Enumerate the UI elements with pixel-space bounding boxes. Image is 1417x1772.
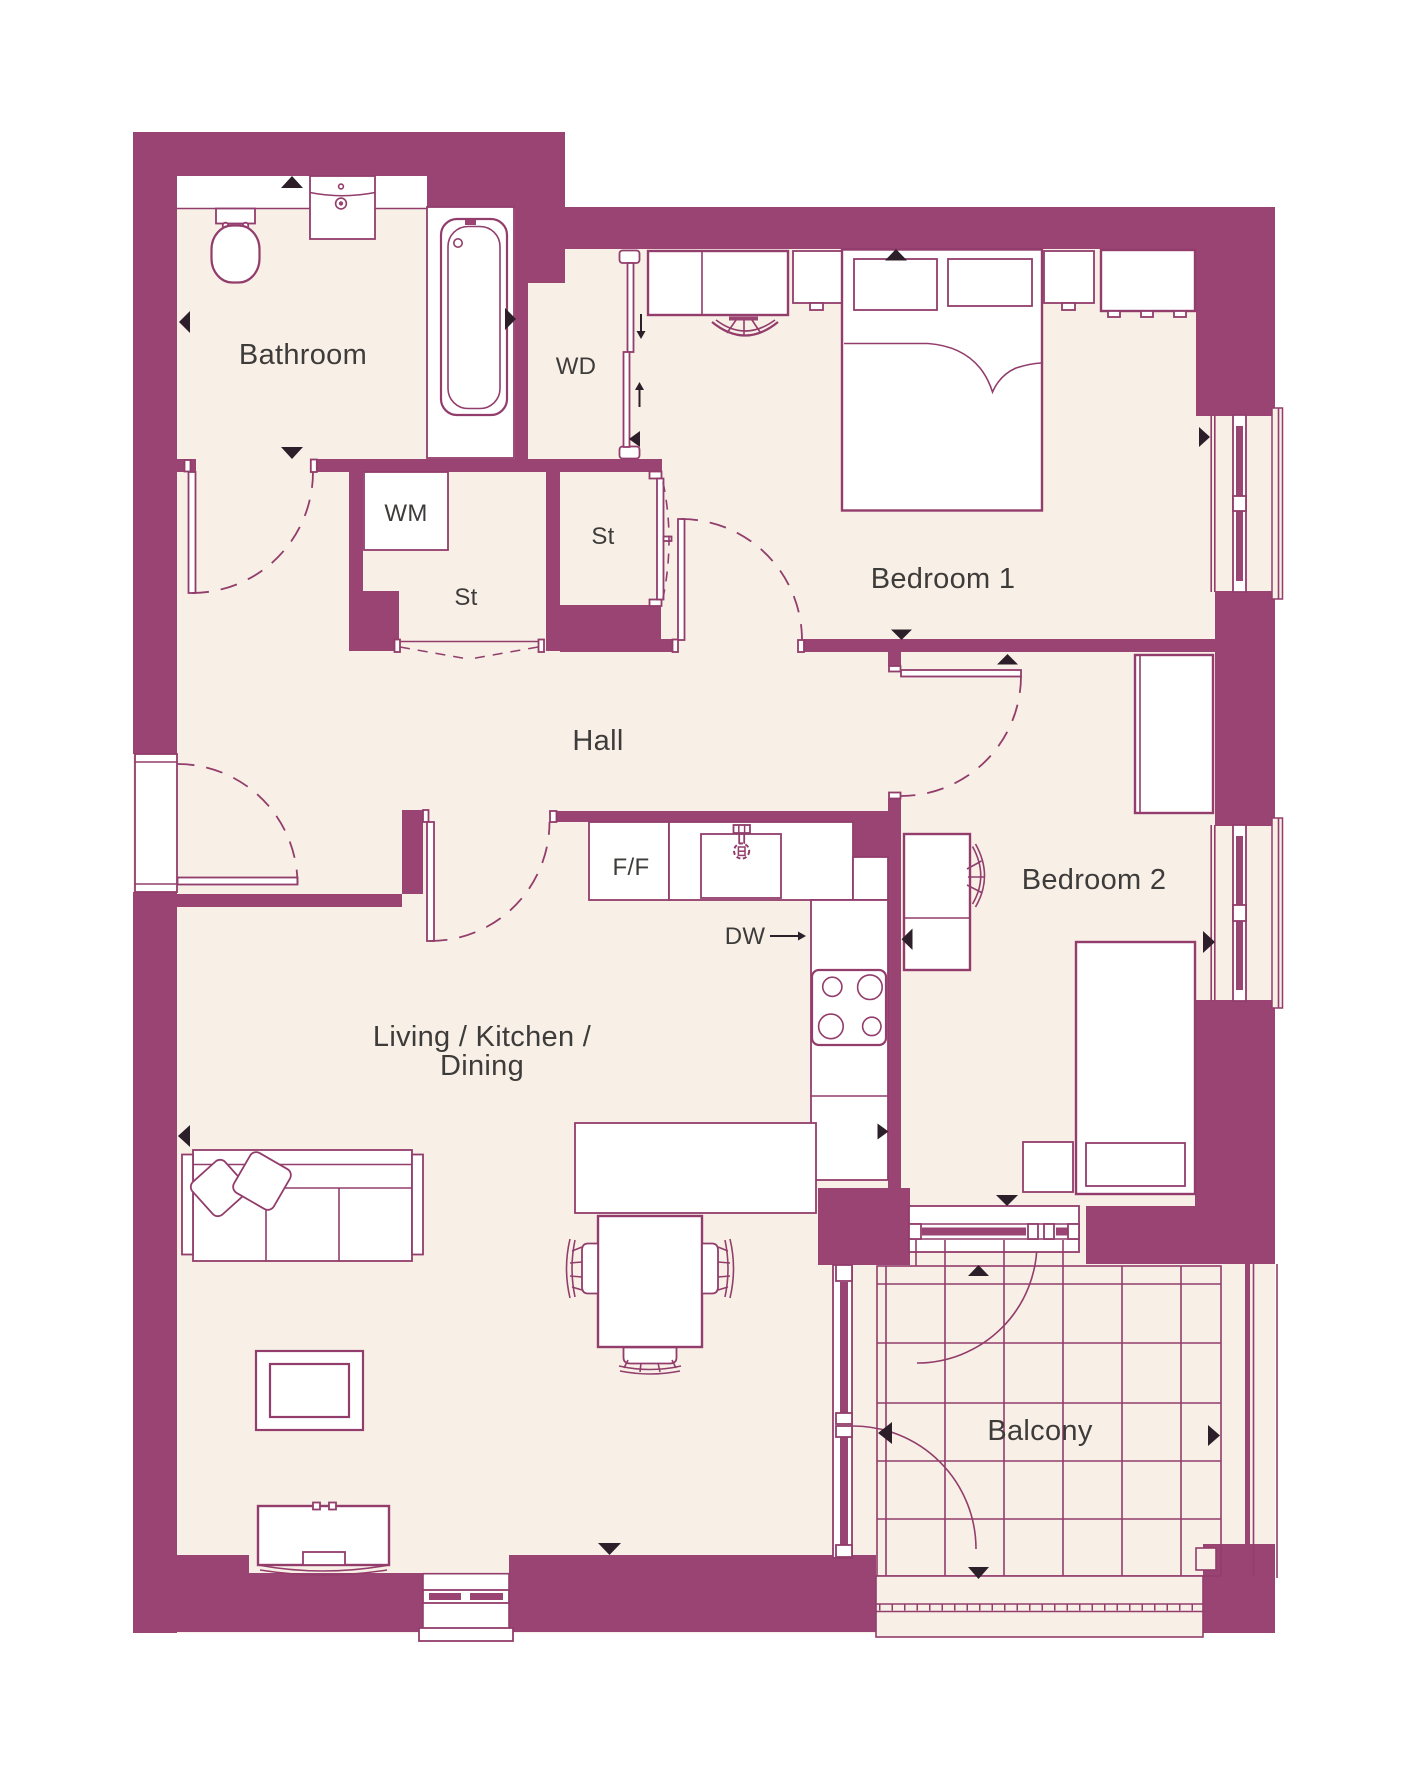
svg-text:Hall: Hall [572, 725, 623, 757]
svg-text:Bathroom: Bathroom [239, 339, 367, 371]
svg-text:WD: WD [556, 353, 597, 380]
svg-text:Bedroom 1: Bedroom 1 [871, 563, 1016, 595]
svg-text:Balcony: Balcony [987, 1415, 1092, 1447]
svg-text:Dining: Dining [440, 1050, 524, 1082]
svg-text:Bedroom 2: Bedroom 2 [1022, 864, 1167, 896]
svg-text:F/F: F/F [613, 854, 650, 881]
svg-text:St: St [591, 523, 614, 550]
svg-text:St: St [454, 584, 477, 611]
svg-text:Living / Kitchen /: Living / Kitchen / [373, 1021, 592, 1053]
svg-text:WM: WM [384, 500, 427, 527]
svg-text:DW: DW [725, 923, 766, 950]
